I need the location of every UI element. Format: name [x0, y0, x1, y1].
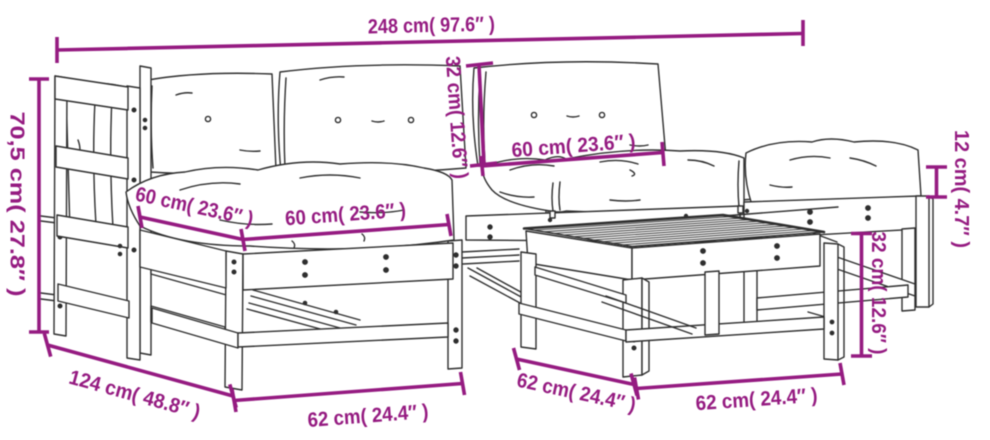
svg-text:248 cm( 97.6″ ): 248 cm( 97.6″ ): [368, 13, 495, 39]
svg-text:12 cm( 4.7″ ): 12 cm( 4.7″ ): [950, 130, 973, 248]
svg-text:70,5 cm( 27.8″ ): 70,5 cm( 27.8″ ): [6, 112, 29, 297]
svg-text:32 cm( 12.6″ ): 32 cm( 12.6″ ): [867, 232, 890, 355]
